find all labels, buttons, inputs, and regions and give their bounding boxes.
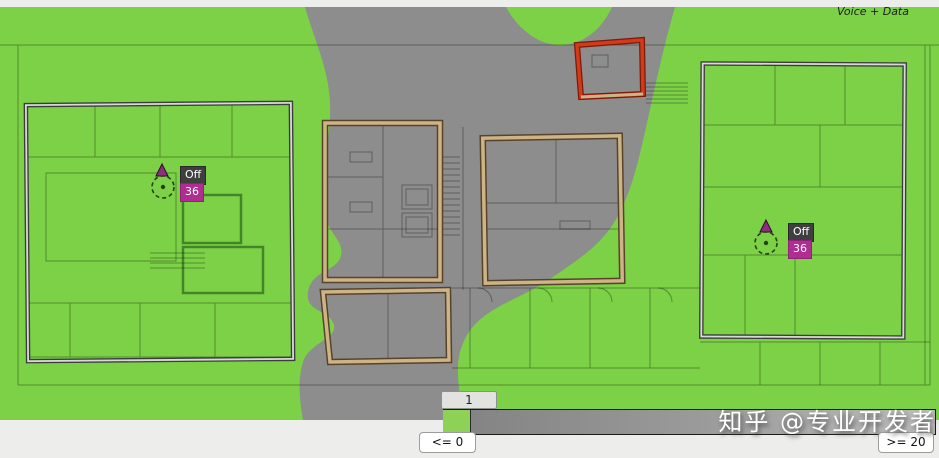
ap-center-dot — [161, 185, 165, 189]
wifi-heatmap-app: Off 36 Off 36 1 Voice + Data <= 0 >= 20 … — [0, 0, 939, 458]
legend-colorbar-green-segment — [443, 410, 471, 434]
legend-min-button[interactable]: <= 0 — [419, 432, 476, 453]
zhihu-watermark: 知乎 @专业开发者 — [718, 402, 936, 437]
legend-slider-handle[interactable]: 1 — [441, 391, 497, 409]
ap-right-channel-badge: 36 — [788, 240, 812, 259]
legend-bar-label: Voice + Data — [837, 5, 909, 18]
floorplan-heatmap-canvas[interactable] — [0, 7, 939, 420]
ap-left-channel-badge: 36 — [180, 183, 204, 202]
ap-center-dot — [764, 241, 768, 245]
